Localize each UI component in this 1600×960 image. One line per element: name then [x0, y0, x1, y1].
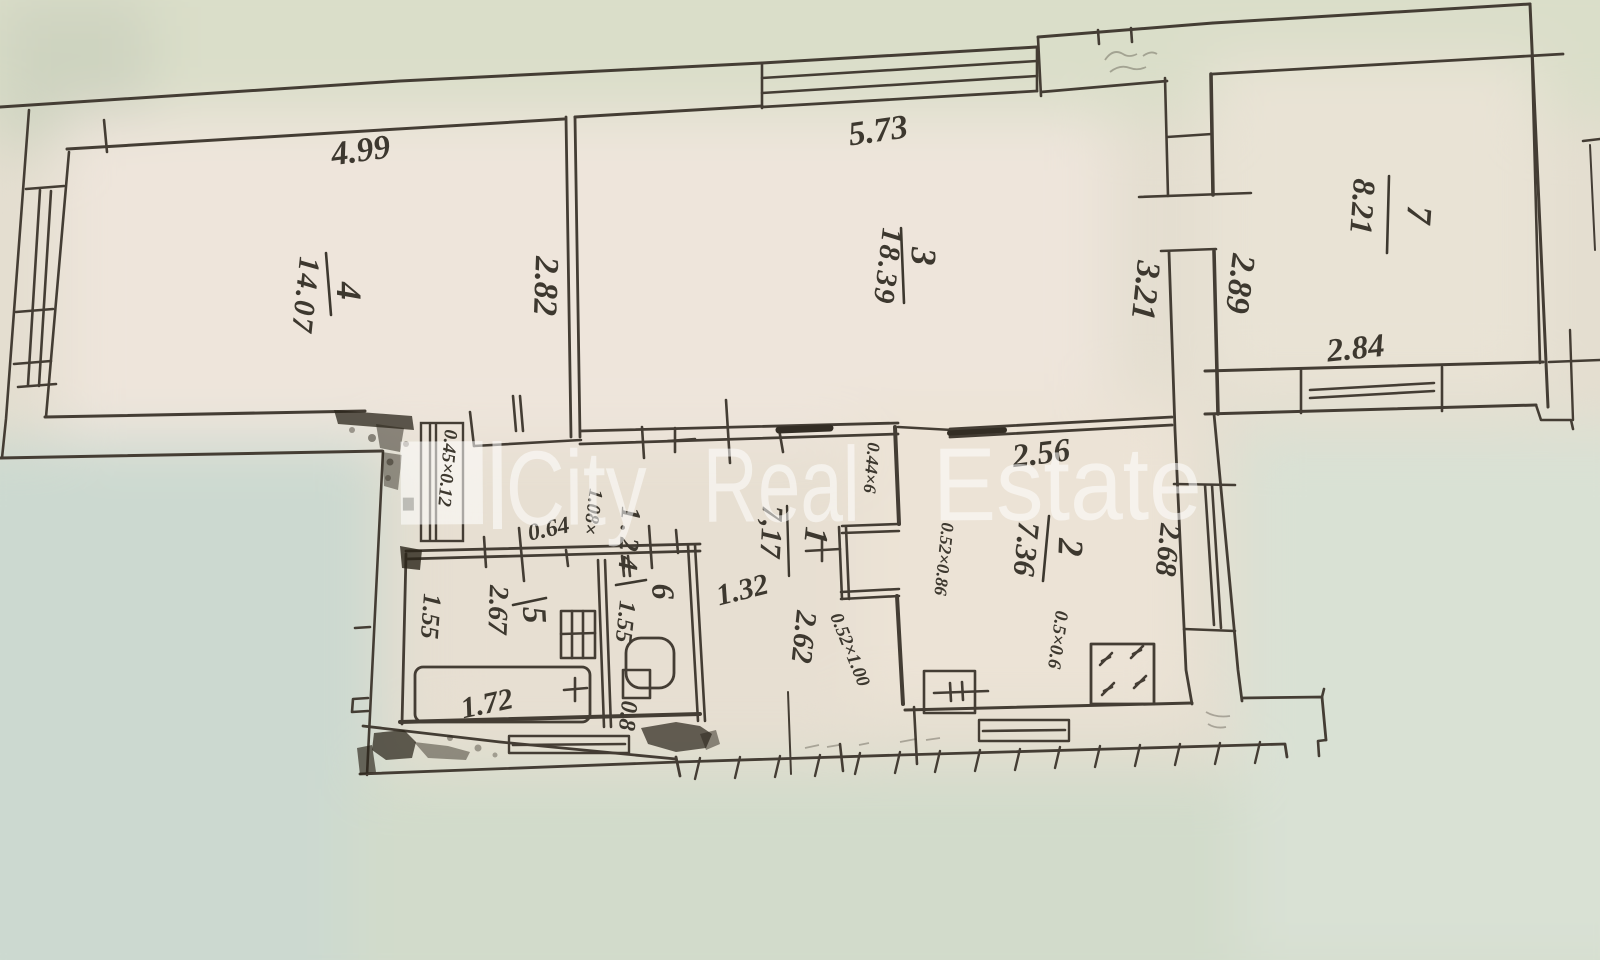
svg-text:Estate: Estate: [932, 426, 1202, 544]
svg-text:1.55: 1.55: [415, 593, 447, 640]
svg-text:0.8: 0.8: [613, 699, 642, 732]
svg-text:2.67: 2.67: [481, 584, 514, 636]
svg-text:6: 6: [645, 582, 682, 600]
svg-text:Real: Real: [702, 426, 860, 545]
svg-text:2.89: 2.89: [1218, 251, 1262, 316]
svg-text:5: 5: [515, 605, 553, 624]
svg-text:3: 3: [903, 246, 944, 266]
svg-text:8.21: 8.21: [1343, 178, 1383, 236]
svg-text:2.62: 2.62: [785, 608, 823, 665]
svg-text:3.21: 3.21: [1124, 258, 1167, 322]
svg-text:City: City: [505, 429, 647, 548]
svg-text:1.55: 1.55: [610, 599, 640, 643]
svg-text:2.84: 2.84: [1324, 328, 1386, 370]
svg-text:4: 4: [329, 281, 369, 300]
svg-text:2.82: 2.82: [526, 255, 565, 317]
